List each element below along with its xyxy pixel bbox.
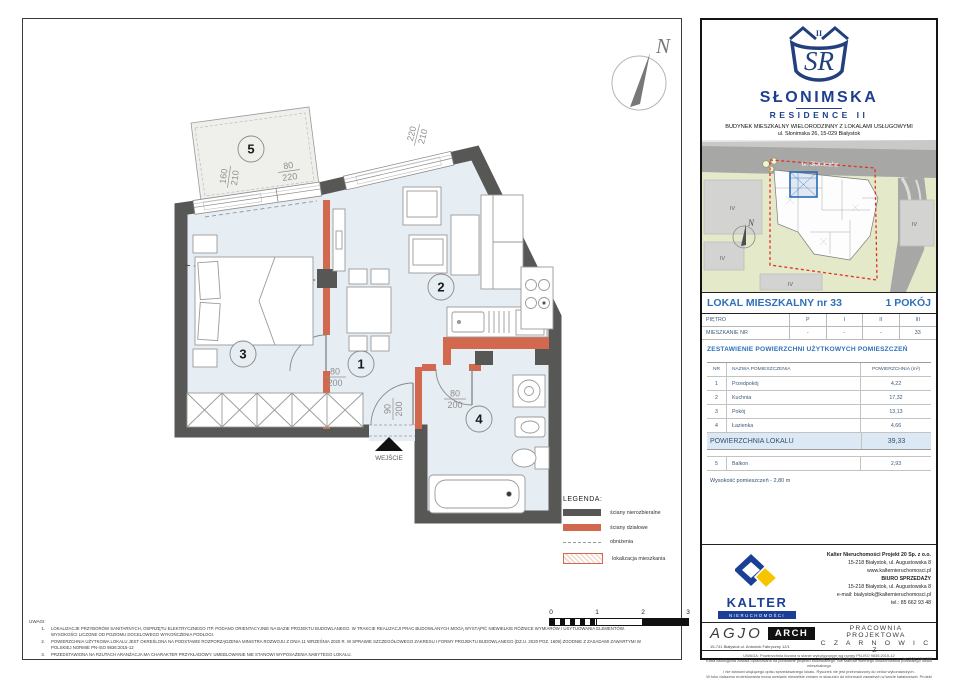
developer-website: www.kalternieruchomosci.pl: [801, 567, 931, 575]
legend-label-drops: obniżenia: [610, 539, 633, 545]
note-2: 2. POWIERZCHNIA UŻYTKOWA LOKALU JEST OKR…: [29, 639, 649, 651]
bathroom-sink: [515, 417, 545, 437]
floor-plan-sheet: 1 2 3 4 5 160 210 80: [22, 18, 682, 660]
kalter-logo-block: KALTER NIERUCHOMOŚCI: [718, 553, 796, 619]
total-area-label: POWIERZCHNIA LOKALU: [707, 433, 861, 449]
scale-1: 1: [595, 609, 599, 616]
agjo-name: AGJO: [710, 625, 763, 642]
info-panel: II SR SŁONIMSKA RESIDENCE II BUDYNEK MIE…: [700, 18, 938, 660]
notes-title: UWAGI:: [29, 619, 649, 624]
entrance-label: WEJŚCIE: [375, 454, 403, 462]
sales-office-label: BIURO SPRZEDAŻY: [801, 575, 931, 583]
sr-logo: II SR: [764, 23, 874, 83]
area-row-2: 2 Kuchnia 17,32: [707, 391, 931, 405]
wall-pier-1: [475, 351, 493, 365]
area-row-1: 1 Przedpokój 4,22: [707, 377, 931, 391]
apartment-number-label: MIESZKANIE NR: [702, 327, 790, 339]
legend-item-location: lokalizacja mieszkania: [563, 553, 693, 564]
disclaimer-block: UWAGA: Powierzchnia liczona w stanie wyk…: [702, 650, 936, 678]
floor-3: III: [900, 314, 937, 326]
agjo-logo: AGJO ARCH: [710, 625, 815, 642]
areas-table-title: ZESTAWIENIE POWIERZCHNI UŻYTKOWYCH POMIE…: [707, 346, 931, 353]
bed: [195, 257, 313, 345]
developer-block: KALTER NIERUCHOMOŚCI Kalter Nieruchomośc…: [702, 544, 936, 623]
note-3-number: 3.: [29, 652, 51, 658]
north-arrow: N: [612, 34, 671, 110]
apt-p: -: [790, 327, 827, 339]
site-map: ul. Słonimska IV IV IV IV: [702, 140, 936, 293]
building-address: ul. Słonimska 26, 15-029 Białystok: [702, 131, 936, 137]
balcony-row-table: 5 Balkon 2,93: [707, 456, 931, 471]
dim-room-door-h: 200: [327, 378, 342, 388]
tv-unit: [333, 209, 345, 271]
logo-roman-numeral: II: [816, 29, 822, 38]
legend-item-drops: obniżenia: [563, 539, 693, 545]
studio-address: 15-741 Białystok ul. Antoniuk Fabryczny …: [710, 644, 790, 649]
floor-label: PIĘTRO: [702, 314, 790, 326]
header-nr: NR: [707, 363, 727, 376]
highlighted-unit: [790, 172, 817, 197]
kalter-name: KALTER: [718, 595, 796, 610]
floor-p: P: [790, 314, 827, 326]
notes-block: UWAGI: 1. LOKALIZACJE PRZYBORÓW SANITARN…: [29, 619, 649, 659]
room-number-3: 3: [239, 347, 246, 362]
note-1-text: LOKALIZACJE PRZYBORÓW SANITARNYCH, OSPRZ…: [51, 626, 649, 638]
scale-0: 0: [549, 609, 553, 616]
floor-row: PIĘTRO P I II III: [702, 314, 936, 327]
dim-room-door-w: 80: [330, 367, 340, 377]
arch-badge: ARCH: [768, 627, 815, 640]
solid-wall-swatch: [563, 509, 601, 516]
room-number-1: 1: [357, 357, 364, 372]
studio-block: AGJO ARCH 15-741 Białystok ul. Antoniuk …: [702, 622, 936, 651]
kalter-logo-icon: [735, 553, 779, 589]
apartment-number-row: MIESZKANIE NR - - - 33: [702, 327, 936, 340]
building-description: BUDYNEK MIESZKALNY WIELORODZINNY Z LOKAL…: [702, 124, 936, 130]
total-area-row: POWIERZCHNIA LOKALU 39,33: [707, 433, 931, 450]
room-number-4: 4: [475, 412, 483, 427]
sales-office-address: 15-218 Białystok, ul. Augustowska 8: [801, 583, 931, 591]
sofa: [481, 195, 523, 289]
nightstand-2: [193, 349, 217, 367]
dim-balcony-window-h: 220: [282, 171, 298, 183]
dim-bath-door-w: 80: [450, 389, 460, 399]
note-2-text: POWIERZCHNIA UŻYTKOWA LOKALU JEST OKREŚL…: [51, 639, 649, 651]
developer-address: 15-218 Białystok, ul. Augustowska 8: [801, 559, 931, 567]
unit-title-row: LOKAL MIESZKALNY nr 33 1 POKÓJ: [702, 292, 936, 314]
header-name: NAZWA POMIESZCZENIA: [727, 363, 861, 376]
coffee-table: [451, 215, 479, 275]
logo-monogram: SR: [804, 46, 835, 76]
scale-3: 3: [686, 609, 690, 616]
catalog-sheet: 1 2 3 4 5 160 210 80: [0, 0, 960, 678]
wall-pier-2: [535, 349, 551, 365]
dashed-line-swatch: [563, 542, 601, 543]
map-north-label: N: [747, 218, 755, 228]
note-1: 1. LOKALIZACJE PRZYBORÓW SANITARNYCH, OS…: [29, 626, 649, 638]
note-1-number: 1.: [29, 626, 51, 638]
developer-phone: tel.: 85 662 93 48: [801, 599, 931, 607]
brand-subtitle: RESIDENCE II: [702, 110, 936, 120]
kalter-subtitle: NIERUCHOMOŚCI: [718, 611, 796, 619]
area-row-4: 4 Łazienka 4,66: [707, 419, 931, 433]
ceiling-height-note: Wysokość pomieszczeń - 2,80 m: [710, 478, 790, 484]
dim-kitchen-window-h: 210: [416, 128, 429, 145]
apt-2: -: [863, 327, 900, 339]
apt-3: 33: [900, 327, 937, 339]
north-label: N: [655, 34, 671, 58]
brand-underline: [796, 108, 842, 109]
apt-1: -: [827, 327, 864, 339]
disclaimer-line-2: Karta katalogowa została opracowana na p…: [702, 658, 936, 668]
legend-item-partitions: ściany działowe: [563, 524, 693, 531]
legend-label-walls: ściany nierozbieralne: [610, 510, 661, 516]
legend-label-location: lokalizacja mieszkania: [612, 556, 665, 562]
dim-bath-door-h: 200: [447, 400, 462, 410]
room-number-5: 5: [247, 142, 254, 157]
unit-room-count: 1 POKÓJ: [885, 297, 931, 309]
dim-balcony-window-w: 80: [283, 160, 294, 171]
hatch-swatch: [563, 553, 603, 564]
floor-2: II: [863, 314, 900, 326]
zone-label-1: IV: [730, 206, 735, 212]
wardrobe: [187, 393, 363, 427]
balcony-row: 5 Balkon 2,93: [707, 457, 931, 471]
developer-contact: Kalter Nieruchomości Projekt 20 Sp. z o.…: [801, 551, 931, 607]
areas-header-row: NR NAZWA POMIESZCZENIA POWIERZCHNIA (m²): [707, 363, 931, 377]
dim-entrance-h: 200: [394, 401, 404, 416]
room-number-2: 2: [437, 280, 444, 295]
stove: [521, 267, 553, 329]
scale-2: 2: [641, 609, 645, 616]
developer-email: e-mail: bialystok@kalternieruchomosci.pl: [801, 591, 931, 599]
toilet: [512, 447, 549, 469]
design-office-line1: PRACOWNIA PROJEKTOWA: [820, 625, 932, 639]
zone-label-2: IV: [912, 222, 917, 228]
nightstand-1: [193, 235, 217, 253]
bathtub: [429, 475, 525, 513]
dim-balcony-door-w: 160: [218, 168, 230, 184]
note-3: 3. PRZEDSTAWIONA NA RZUTACH ARANŻACJA MA…: [29, 652, 649, 658]
brand-title: SŁONIMSKA: [702, 89, 936, 107]
legend-title: LEGENDA:: [563, 496, 693, 503]
note-3-text: PRZEDSTAWIONA NA RZUTACH ARANŻACJA MA CH…: [51, 652, 649, 658]
scale-numbers: 0 1 2 3: [549, 609, 689, 617]
zone-label-3: IV: [720, 256, 725, 262]
legend: LEGENDA: ściany nierozbieralne ściany dz…: [563, 496, 693, 572]
brand-header: II SR SŁONIMSKA RESIDENCE II BUDYNEK MIE…: [702, 20, 936, 141]
areas-table: NR NAZWA POMIESZCZENIA POWIERZCHNIA (m²)…: [707, 362, 931, 450]
total-area-value: 39,33: [861, 433, 931, 449]
dim-entrance-w: 90: [383, 404, 393, 414]
note-2-number: 2.: [29, 639, 51, 651]
washing-machine: [513, 375, 545, 407]
unit-title: LOKAL MIESZKALNY nr 33: [707, 297, 842, 309]
legend-label-partitions: ściany działowe: [610, 525, 648, 531]
floor-table: PIĘTRO P I II III MIESZKANIE NR - - - 33: [702, 314, 936, 340]
partition-wall-swatch: [563, 524, 601, 531]
floor-1: I: [827, 314, 864, 326]
zone-label-4: IV: [788, 282, 793, 288]
area-row-3: 3 Pokój 13,13: [707, 405, 931, 419]
legend-item-walls: ściany nierozbieralne: [563, 509, 693, 516]
dim-balcony-door-h: 210: [229, 170, 241, 186]
disclaimer-line-4: W toku dalszego projektowania mogą wystą…: [702, 674, 936, 678]
header-area: POWIERZCHNIA (m²): [861, 363, 931, 376]
developer-company: Kalter Nieruchomości Projekt 20 Sp. z o.…: [801, 551, 931, 559]
